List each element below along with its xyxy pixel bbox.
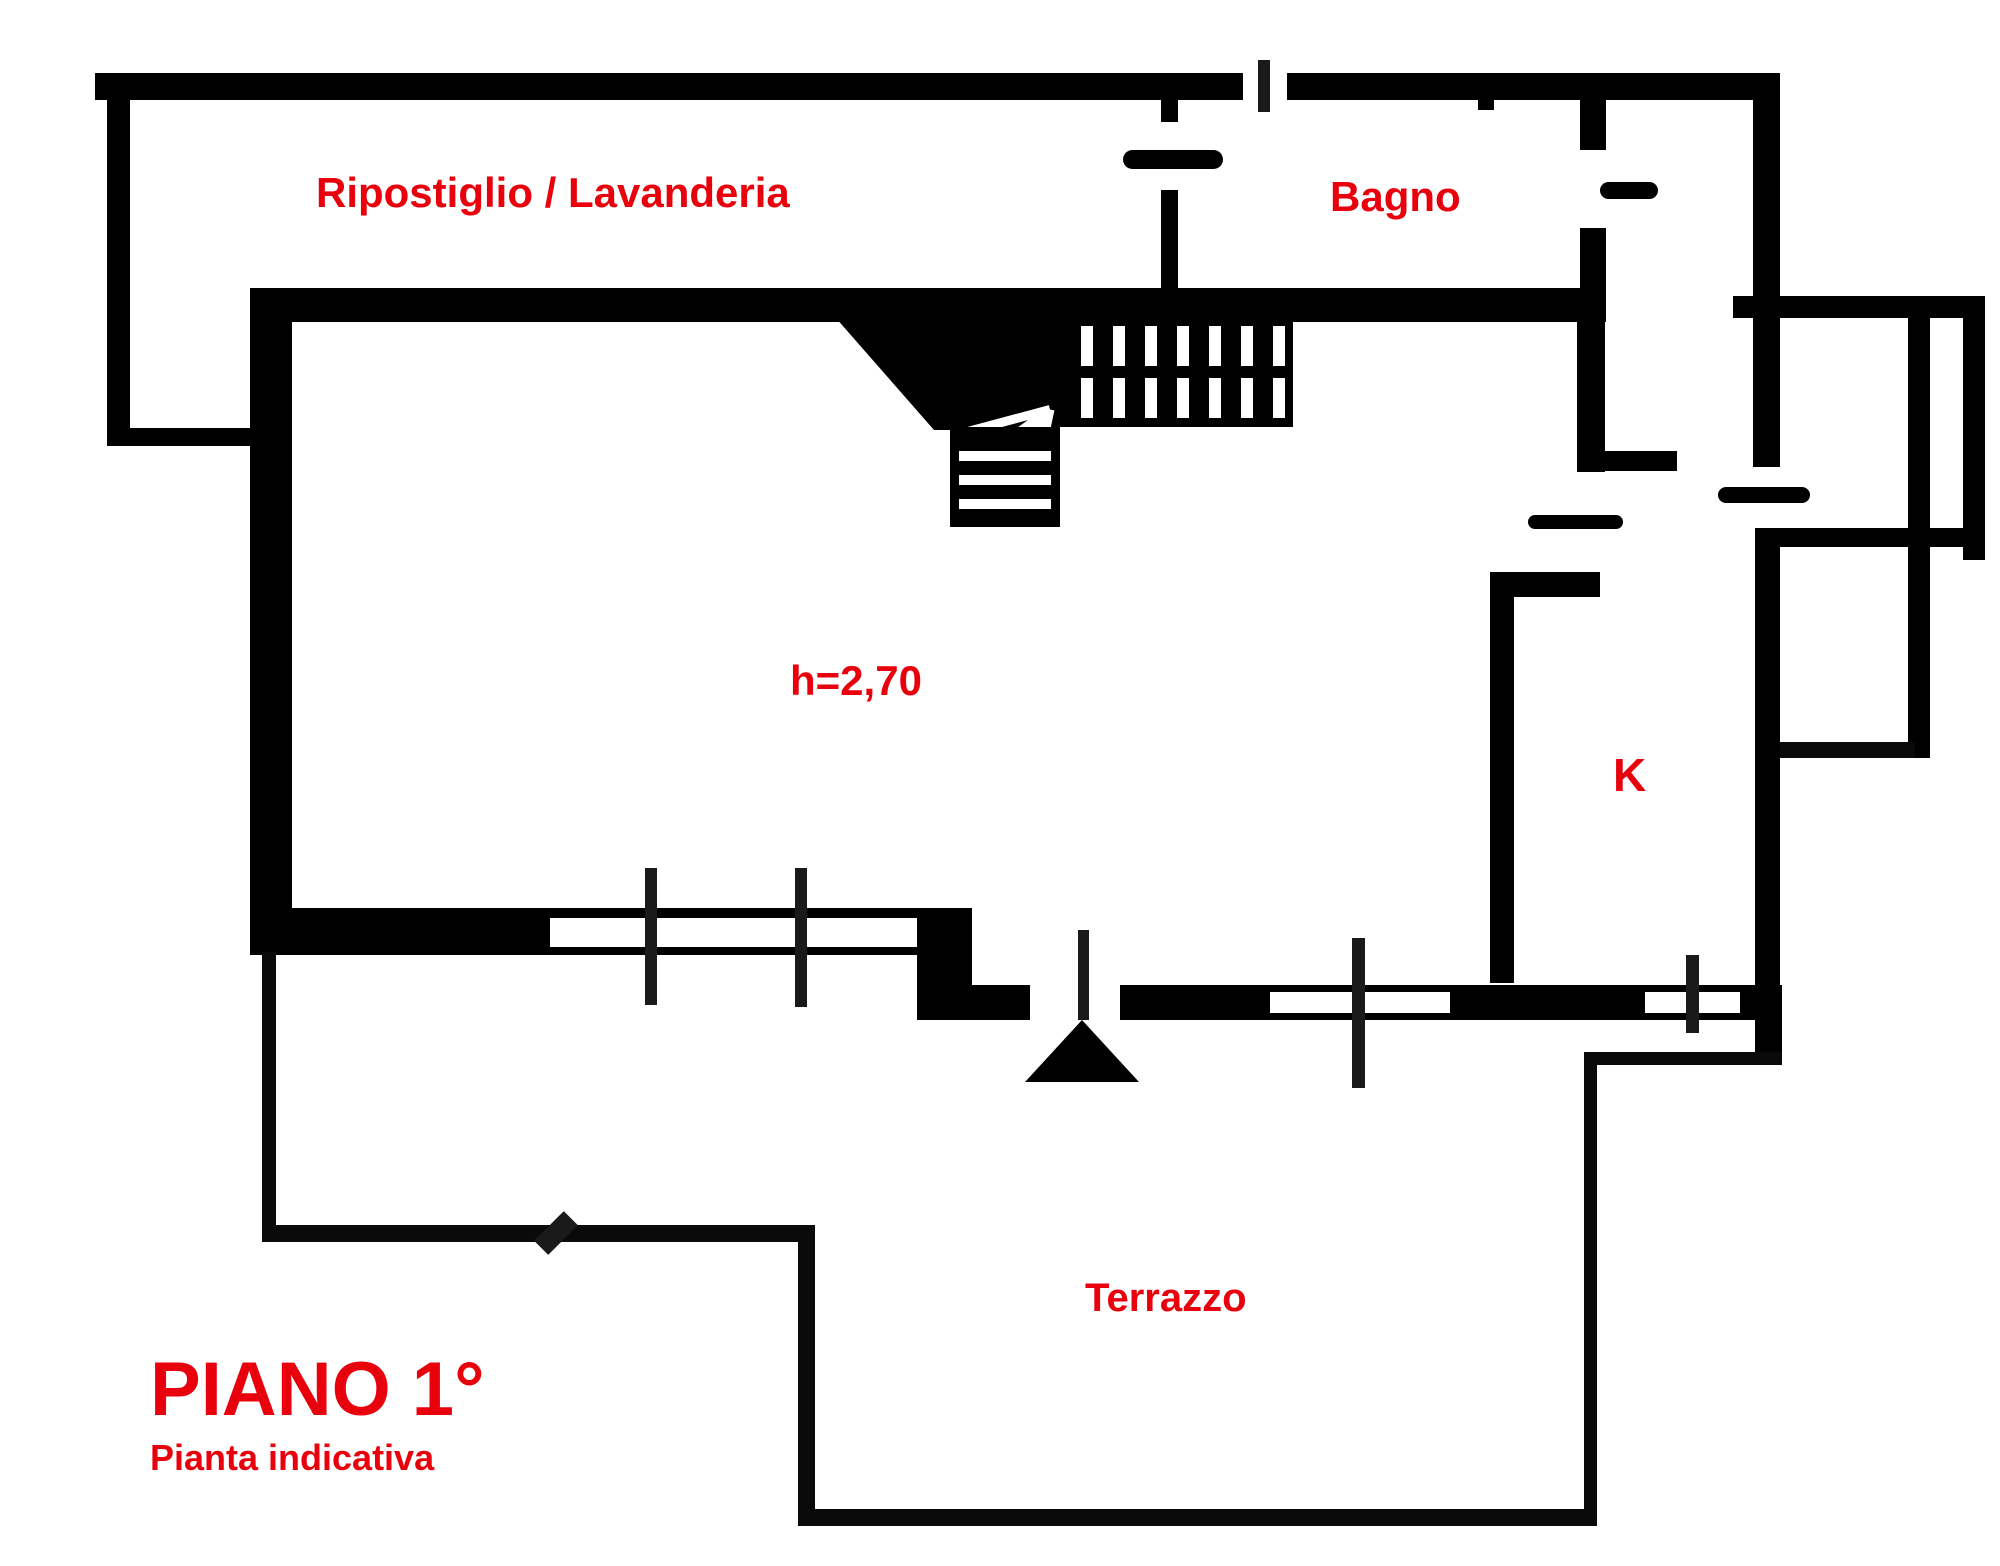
wall-storage-bottom [107,428,250,446]
window-south-2-tick [1686,955,1699,1033]
room-label-kitchen: K [1613,752,1646,798]
wall-partition-bagno-stub [1161,95,1178,122]
wall-bay-bottom [1780,742,1915,758]
wall-partition-east-stub [1580,95,1606,150]
wall-main-horizontal [250,288,1605,322]
wall-partition-east-elbow [1605,451,1677,471]
floor-plan: Ripostiglio / Lavanderia Bagno h=2,70 K … [0,0,2000,1566]
entrance-door-swing [1025,1020,1139,1082]
entrance-door-opening [1030,985,1120,1020]
stairs-upper-run [1055,317,1293,427]
wall-outer-left [107,73,130,446]
stairs-treads-vertical [959,437,1051,522]
terrace-edge-topright [1584,1052,1782,1065]
terrace-edge-mid [798,1225,815,1525]
door-leaf-east-bay [1718,487,1810,503]
window-south-1-tick [1352,938,1365,1088]
window-southwest-tick-2 [795,868,807,1007]
door-leaf-corridor [1600,182,1658,199]
terrace-edge-bottom [798,1509,1597,1526]
wall-partition-bagno-lower [1161,190,1178,290]
terrace-edge-right [1584,1052,1597,1526]
wall-bay-top [1780,528,1985,547]
wall-kitchen-top-stub [1490,572,1600,597]
wall-partition-east-lower [1577,322,1605,472]
wall-kitchen-left [1490,572,1514,983]
wall-bay-right [1908,318,1930,758]
room-label-height: h=2,70 [790,660,922,702]
room-label-terrazzo: Terrazzo [1085,1278,1247,1318]
door-leaf-kitchen [1528,515,1623,529]
wall-living-left [250,288,292,952]
wall-top-stub [1478,95,1494,110]
terrace-edge-left [262,952,276,1242]
window-southwest [550,918,917,947]
wall-bagno-right [1753,73,1780,467]
stairs-winder [835,317,1060,430]
entrance-door-tick [1078,930,1089,1020]
stairs-treads-row [1061,378,1287,418]
wall-top [95,73,1780,100]
page-subtitle: Pianta indicativa [150,1440,434,1476]
window-southwest-tick-1 [645,868,657,1005]
room-label-bagno: Bagno [1330,176,1461,218]
stairs-treads-row [1061,326,1287,366]
wall-annex-top [1733,296,1985,318]
door-leaf-bagno [1123,150,1223,169]
wall-annex-right [1963,296,1985,560]
room-label-ripostiglio: Ripostiglio / Lavanderia [316,172,790,214]
page-title: PIANO 1° [150,1352,484,1428]
wall-bay-left [1755,528,1780,1057]
stairs-lower-run [950,427,1060,527]
wall-partition-east-mid [1580,228,1606,322]
top-wall-vent-tick [1258,60,1270,112]
